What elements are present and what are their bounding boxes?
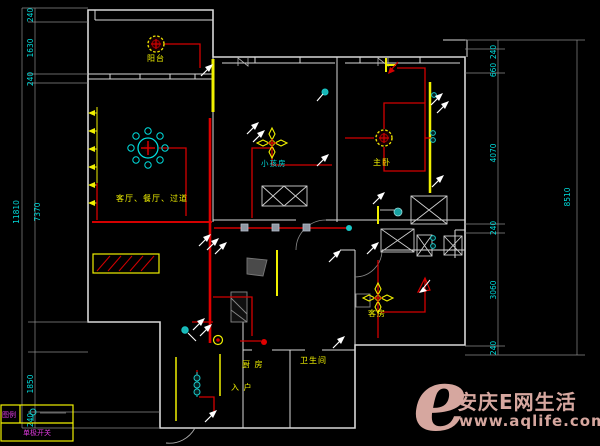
distribution-box xyxy=(93,254,159,273)
dim-right-s5: 3060 xyxy=(489,280,498,299)
room-label-kitchen: 厨 房 xyxy=(242,359,264,369)
dim-right-s4: 240 xyxy=(489,221,498,236)
door-arc-kids xyxy=(296,220,326,250)
entry-lamp-icon xyxy=(214,336,223,345)
room-label-entry: 入 户 xyxy=(231,382,253,392)
watermark-url: www.aqlife.com xyxy=(459,412,600,430)
switch-icon xyxy=(317,154,329,166)
master-lamp-icon xyxy=(376,130,392,146)
wall-balcony-top-inner xyxy=(95,10,213,20)
hatch-box-wardrobe-3 xyxy=(417,235,432,256)
door-arc-entry xyxy=(166,428,195,443)
dim-ticks-left xyxy=(22,8,160,428)
wire-master-top xyxy=(397,68,425,103)
room-label-guest: 客房 xyxy=(368,308,386,318)
legend-header: 图例 xyxy=(2,410,16,419)
balcony-lamp-icon xyxy=(148,36,164,52)
chandelier-icon xyxy=(128,128,168,168)
dim-right-total: 8510 xyxy=(563,187,572,206)
dim-left-total: 11810 xyxy=(12,200,21,224)
wall-topright-step xyxy=(443,40,467,57)
dim-left-s1: 240 xyxy=(26,8,35,23)
dim-left-s2: 1630 xyxy=(26,38,35,57)
corridor-end-dot xyxy=(346,225,352,231)
dim-right-s6: 240 xyxy=(489,341,498,356)
hatch-box-wardrobe-2 xyxy=(381,229,414,252)
switch-icon xyxy=(373,192,385,204)
switch-icons xyxy=(193,64,449,422)
window-arrows-left-wall xyxy=(88,107,97,218)
legend-table: 图例 单极开关 xyxy=(1,405,73,441)
tv-panel xyxy=(247,258,267,276)
switch-icon xyxy=(437,101,449,113)
switch-icon xyxy=(247,122,259,134)
dim-right-s2: 660 xyxy=(489,63,498,78)
cad-floorplan-view: 240 1630 240 7370 11810 1850 240 240 660… xyxy=(0,0,600,446)
wire-entry-switch xyxy=(199,397,214,413)
wall-top-inner xyxy=(222,57,460,63)
wall-right-step xyxy=(455,230,465,258)
room-label-bath: 卫生间 xyxy=(300,355,327,365)
switch-icon xyxy=(215,242,227,254)
room-label-kids: 小孩房 xyxy=(261,158,287,168)
hatch-box-kids-bed xyxy=(262,186,307,206)
furniture xyxy=(231,186,462,322)
guest-wall-lamp-icon xyxy=(418,278,430,293)
room-label-living: 客厅、餐厅、过道 xyxy=(116,193,188,203)
bedside-lamp-icon xyxy=(380,208,402,216)
wall-outline xyxy=(88,10,465,428)
teal-switch-2 xyxy=(317,89,328,101)
dim-left-s4: 1850 xyxy=(26,374,35,393)
hatch-box-ac-platform xyxy=(444,236,462,255)
dim-left-s3: 240 xyxy=(26,72,35,87)
switch-icon xyxy=(193,318,205,330)
wire-balcony xyxy=(160,44,200,68)
room-label-balcony: 阳台 xyxy=(147,53,165,63)
legend-switch-label: 单极开关 xyxy=(23,428,51,437)
switch-icon xyxy=(367,242,379,254)
dimensions: 240 1630 240 7370 11810 1850 240 240 660… xyxy=(12,8,585,428)
red-dot-lamp xyxy=(261,339,267,345)
switch-icon xyxy=(333,336,345,348)
dim-right-s3: 4070 xyxy=(489,143,498,162)
window-mark-n1 xyxy=(238,58,248,66)
dim-labels-right: 240 660 4070 240 3060 240 8510 xyxy=(489,45,572,356)
switch-icon xyxy=(329,250,341,262)
switch-icon xyxy=(205,410,217,422)
switch-icon xyxy=(432,175,444,187)
dim-left-inner: 7370 xyxy=(33,202,42,221)
window-balcony xyxy=(88,74,213,79)
legend-switch-symbol xyxy=(30,409,66,421)
watermark: e 安庆E网生活 www.aqlife.com xyxy=(413,372,600,446)
dim-labels-left: 240 1630 240 7370 11810 1850 240 xyxy=(12,8,42,428)
dim-right-s1: 240 xyxy=(489,45,498,60)
meter-stack xyxy=(194,372,200,397)
wiring xyxy=(92,44,431,413)
watermark-title: 安庆E网生活 xyxy=(457,386,577,415)
room-label-master: 主卧 xyxy=(373,157,391,167)
sockets xyxy=(182,89,437,397)
